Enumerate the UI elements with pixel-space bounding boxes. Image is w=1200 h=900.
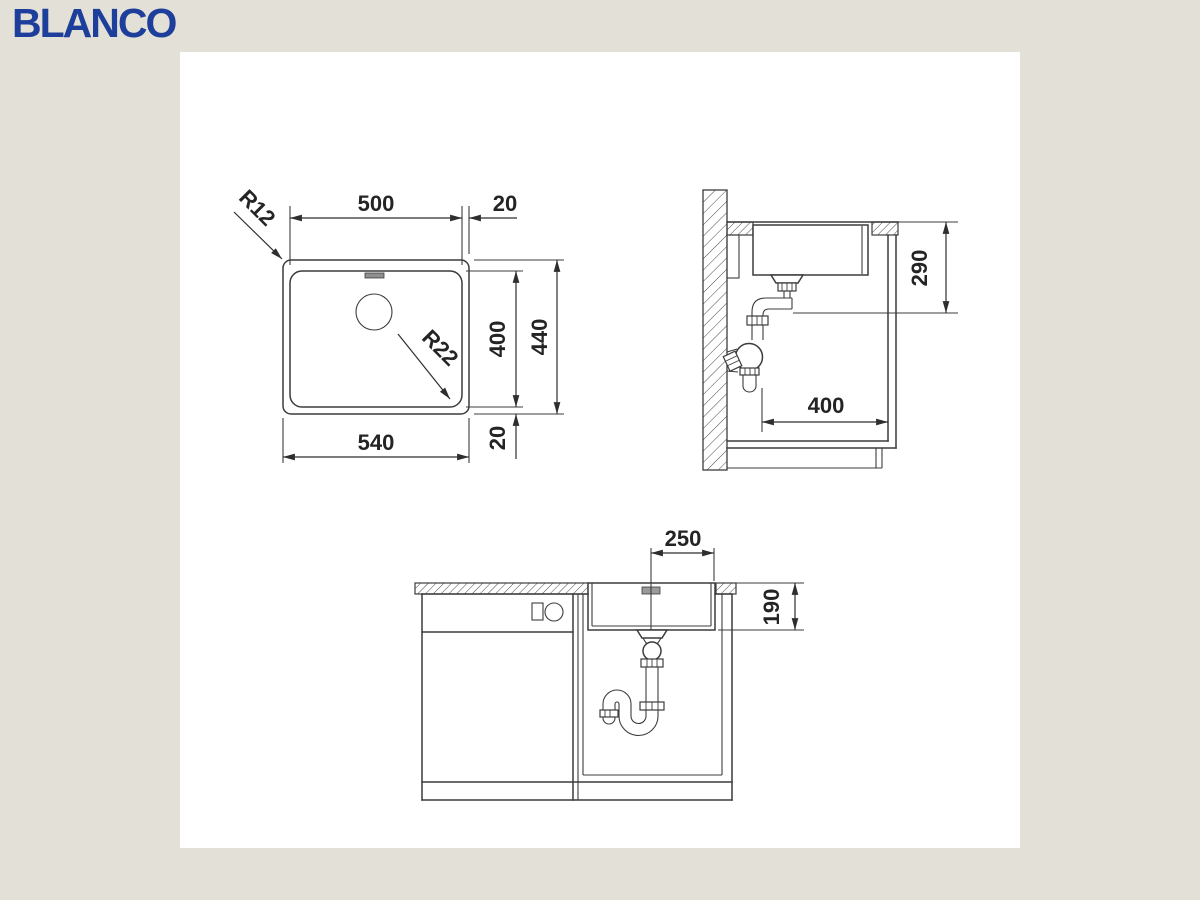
dim-label-bowl-depth: 400 (485, 321, 510, 358)
dim-label-bowl-height-side: 290 (907, 250, 932, 287)
countertop-front-left (415, 583, 588, 594)
appliance-button (532, 603, 543, 620)
countertop-right (872, 222, 898, 235)
drain-flange-front (637, 630, 667, 638)
wall-hatched (703, 190, 727, 470)
wall-batten (727, 235, 739, 278)
dim-label-rim-bottom: 20 (485, 426, 510, 450)
dim-label-rim-right: 20 (493, 191, 517, 216)
dim-label-outer-depth: 440 (527, 319, 552, 356)
drain-flange (771, 275, 803, 283)
countertop-front-right (716, 583, 736, 594)
overflow-slot (365, 273, 384, 278)
appliance-knob (545, 603, 563, 621)
bowl-section (753, 225, 868, 275)
dim-label-outer-width: 540 (358, 430, 395, 455)
dim-label-bowl-height-front: 190 (759, 589, 784, 626)
side-view: 290 400 (703, 190, 958, 470)
plan-view: 500 20 540 400 440 20 R12 R22 (234, 185, 564, 463)
radius-label-outer: R12 (234, 185, 280, 231)
dim-label-drain-distance: 400 (808, 393, 845, 418)
front-view: 250 190 (415, 526, 804, 800)
ball-joint (643, 642, 661, 660)
sink-technical-drawing: 500 20 540 400 440 20 R12 R22 (180, 52, 1020, 848)
dim-label-drain-center: 250 (665, 526, 702, 551)
dim-label-bowl-width: 500 (358, 191, 395, 216)
countertop-left (727, 222, 753, 235)
blanco-logo: BLANCO (12, 0, 175, 47)
